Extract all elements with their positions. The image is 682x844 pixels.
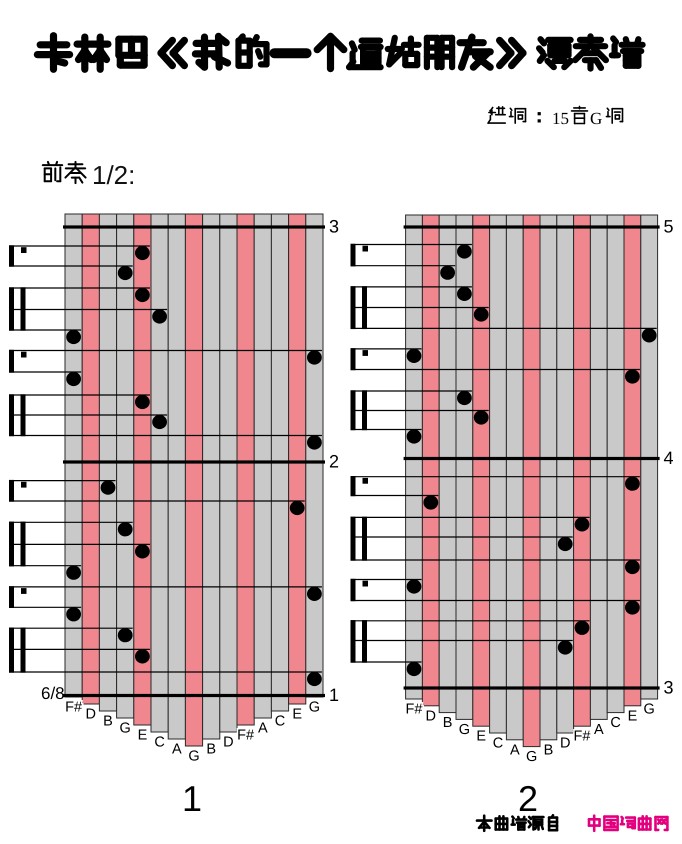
svg-text:G: G: [644, 702, 655, 718]
svg-text:3: 3: [664, 678, 674, 698]
svg-text:E: E: [138, 728, 148, 744]
svg-text:B: B: [206, 742, 216, 758]
svg-text:3: 3: [329, 217, 339, 237]
svg-text:G: G: [120, 721, 131, 737]
svg-text:E: E: [292, 707, 302, 723]
svg-text:A: A: [258, 721, 268, 737]
svg-text:C: C: [275, 714, 285, 730]
svg-text:F#: F#: [406, 702, 423, 718]
svg-text:G: G: [526, 749, 537, 765]
svg-text:B: B: [544, 742, 554, 758]
svg-text:6/8: 6/8: [41, 684, 65, 703]
svg-text:15: 15: [552, 109, 569, 128]
svg-text:G: G: [590, 109, 602, 128]
svg-text:B: B: [103, 714, 113, 730]
svg-text:D: D: [86, 707, 96, 723]
svg-text:D: D: [223, 735, 233, 751]
svg-text:5: 5: [664, 217, 674, 237]
svg-text:F#: F#: [65, 700, 82, 716]
svg-text:G: G: [459, 722, 470, 738]
svg-text:A: A: [172, 742, 182, 758]
svg-text:C: C: [610, 715, 620, 731]
svg-text:F#: F#: [237, 728, 254, 744]
svg-text:1: 1: [182, 778, 202, 819]
svg-text:2: 2: [329, 452, 339, 472]
svg-text:A: A: [510, 742, 520, 758]
svg-text:D: D: [560, 736, 570, 752]
svg-text:E: E: [476, 729, 486, 745]
svg-text:2: 2: [518, 778, 538, 819]
svg-text:G: G: [309, 700, 320, 716]
svg-text:G: G: [188, 749, 199, 765]
svg-text:A: A: [594, 722, 604, 738]
svg-text:4: 4: [664, 448, 674, 468]
svg-text:C: C: [493, 736, 503, 752]
svg-text:B: B: [443, 715, 453, 731]
svg-text:D: D: [426, 708, 436, 724]
svg-text:1: 1: [329, 685, 339, 705]
svg-text:C: C: [154, 735, 164, 751]
svg-text:E: E: [628, 708, 638, 724]
svg-text:1/2:: 1/2:: [92, 160, 135, 190]
svg-text:F#: F#: [574, 729, 591, 745]
